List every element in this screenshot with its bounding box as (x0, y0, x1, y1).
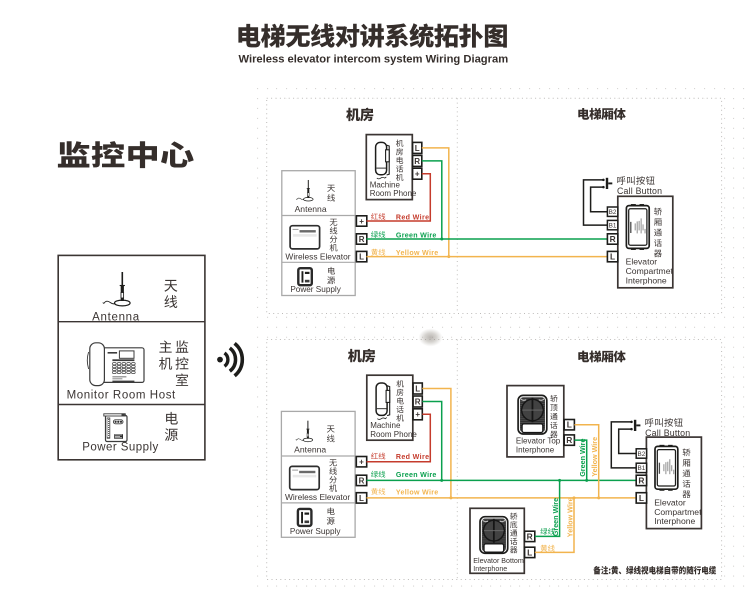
svg-text:Yellow Wire: Yellow Wire (590, 437, 599, 477)
svg-text:R: R (610, 234, 616, 244)
svg-text:R: R (414, 157, 420, 166)
svg-text:R: R (566, 435, 572, 445)
svg-text:Elevator Bottom: Elevator Bottom (473, 557, 524, 565)
svg-text:Yellow Wire: Yellow Wire (565, 497, 574, 537)
svg-text:Antenna: Antenna (295, 204, 327, 214)
svg-text:L: L (415, 144, 420, 153)
svg-text:R: R (527, 531, 533, 541)
svg-text:+: + (359, 458, 364, 467)
svg-text:Yellow Wire: Yellow Wire (396, 488, 439, 496)
svg-text:Yellow Wire: Yellow Wire (396, 249, 439, 257)
svg-text:L: L (527, 547, 532, 557)
svg-text:L: L (567, 420, 572, 430)
svg-text:Wireless Elevator: Wireless Elevator (285, 252, 350, 262)
svg-text:L: L (610, 252, 615, 262)
svg-text:Antenna: Antenna (294, 445, 326, 455)
svg-text:Monitor Room Host: Monitor Room Host (67, 389, 176, 401)
svg-text:Red Wire: Red Wire (396, 453, 429, 461)
svg-text:L: L (415, 384, 420, 393)
svg-text:B2: B2 (637, 451, 645, 458)
svg-text:L: L (359, 494, 364, 503)
svg-text:Green Wire: Green Wire (551, 498, 560, 536)
svg-text:Green Wire: Green Wire (396, 231, 437, 239)
svg-text:Interphone: Interphone (654, 516, 695, 526)
svg-text:+: + (415, 410, 420, 419)
svg-text:Machine: Machine (370, 421, 401, 430)
svg-text:Room Phone: Room Phone (370, 430, 417, 439)
svg-text:+: + (415, 170, 420, 179)
svg-text:Green Wire: Green Wire (578, 439, 587, 477)
svg-text:R: R (359, 235, 365, 244)
svg-text:B2: B2 (609, 209, 617, 216)
svg-text:L: L (639, 493, 644, 503)
svg-text:Green Wire: Green Wire (396, 471, 437, 479)
svg-text:Interphone: Interphone (626, 275, 667, 285)
svg-text:Machine: Machine (370, 180, 401, 189)
svg-text:Room Phone: Room Phone (370, 189, 417, 198)
svg-text:Antenna: Antenna (92, 312, 140, 324)
svg-text:Elevator Top: Elevator Top (516, 437, 561, 446)
svg-text:Wireless Elevator: Wireless Elevator (285, 492, 350, 502)
svg-text:Interphone: Interphone (473, 565, 507, 573)
svg-text:+: + (359, 217, 364, 226)
svg-text:R: R (359, 476, 365, 485)
svg-text:Power Supply: Power Supply (82, 441, 158, 453)
svg-text:L: L (359, 252, 364, 261)
svg-text:R: R (638, 475, 644, 485)
svg-text:Power Supply: Power Supply (290, 527, 341, 536)
svg-text:Power Supply: Power Supply (290, 285, 341, 294)
svg-text:R: R (415, 397, 421, 406)
svg-text:Call Button: Call Button (617, 186, 662, 196)
svg-text:Red Wire: Red Wire (396, 213, 429, 221)
svg-text:Wireless elevator intercom sys: Wireless elevator intercom system Wiring… (239, 54, 509, 66)
svg-text:B1: B1 (637, 465, 645, 472)
svg-text:Interphone: Interphone (516, 445, 555, 454)
svg-text:B1: B1 (609, 222, 617, 229)
